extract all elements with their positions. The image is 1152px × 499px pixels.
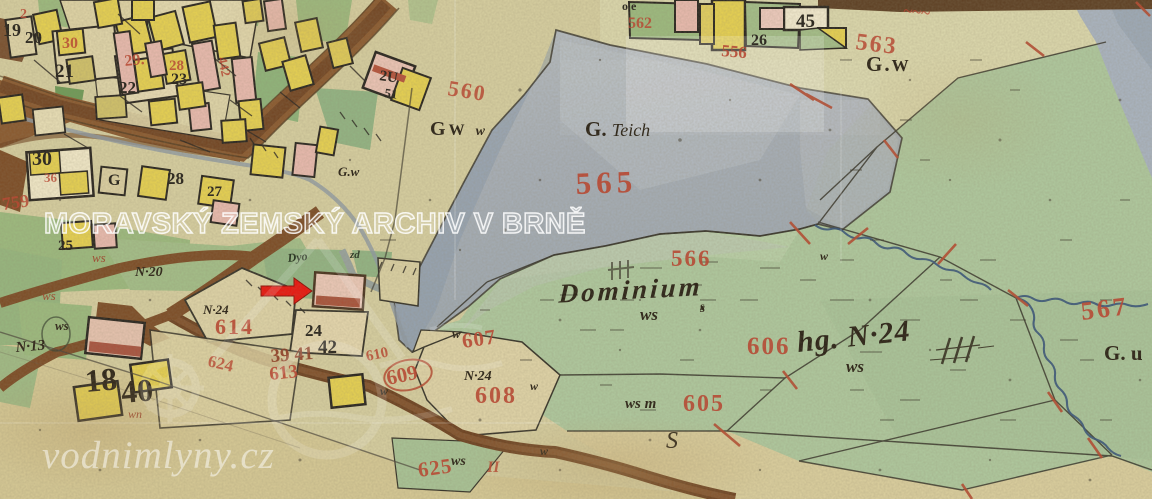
svg-text:MORAVSKÝ ZEMSKÝ ARCHIV V BRNĚ: MORAVSKÝ ZEMSKÝ ARCHIV V BRNĚ [44,206,586,240]
svg-text:vodnimlyny.cz: vodnimlyny.cz [42,434,275,477]
